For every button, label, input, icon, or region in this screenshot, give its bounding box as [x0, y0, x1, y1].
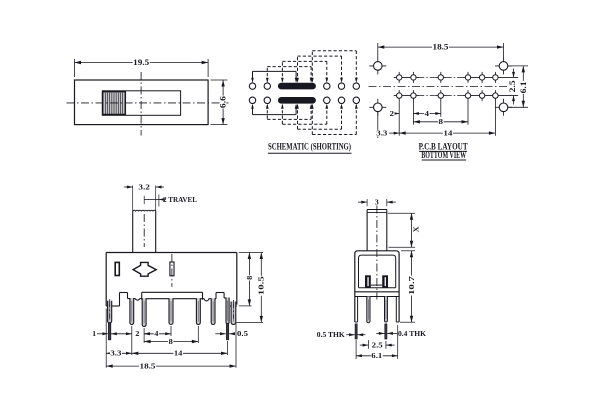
svg-text:X: X	[411, 226, 420, 232]
svg-text:0.4 THK: 0.4 THK	[398, 329, 426, 338]
svg-text:10.7: 10.7	[407, 276, 416, 295]
svg-text:19.5: 19.5	[133, 58, 149, 67]
svg-text:8: 8	[169, 337, 173, 346]
svg-text:3: 3	[375, 197, 379, 206]
svg-text:3.3: 3.3	[110, 349, 121, 358]
svg-text:8: 8	[439, 117, 444, 126]
svg-text:6.1: 6.1	[371, 351, 382, 360]
svg-text:3.2: 3.2	[138, 182, 150, 191]
svg-text:4: 4	[425, 109, 430, 118]
svg-text:BOTTOM VIEW: BOTTOM VIEW	[421, 151, 466, 161]
svg-text:2: 2	[135, 329, 139, 338]
svg-text:14: 14	[174, 349, 183, 358]
svg-text:14: 14	[443, 129, 452, 138]
svg-text:2 TRAVEL: 2 TRAVEL	[163, 195, 197, 204]
svg-text:2: 2	[390, 109, 395, 118]
svg-text:1: 1	[92, 329, 96, 338]
svg-text:6.6: 6.6	[218, 96, 227, 108]
svg-text:4: 4	[154, 329, 158, 338]
svg-text:2.5: 2.5	[508, 80, 517, 92]
svg-text:SCHEMATIC (SHORTING): SCHEMATIC (SHORTING)	[268, 141, 351, 152]
svg-text:0.5 THK: 0.5 THK	[317, 330, 345, 339]
svg-text:18.5: 18.5	[433, 43, 449, 52]
svg-text:10.5: 10.5	[256, 276, 265, 295]
svg-text:6.1: 6.1	[519, 81, 528, 93]
svg-text:8: 8	[245, 276, 254, 280]
svg-text:2.5: 2.5	[372, 341, 383, 350]
svg-text:0.5: 0.5	[237, 329, 248, 338]
svg-text:3.3: 3.3	[376, 129, 387, 138]
svg-text:18.5: 18.5	[140, 362, 156, 371]
